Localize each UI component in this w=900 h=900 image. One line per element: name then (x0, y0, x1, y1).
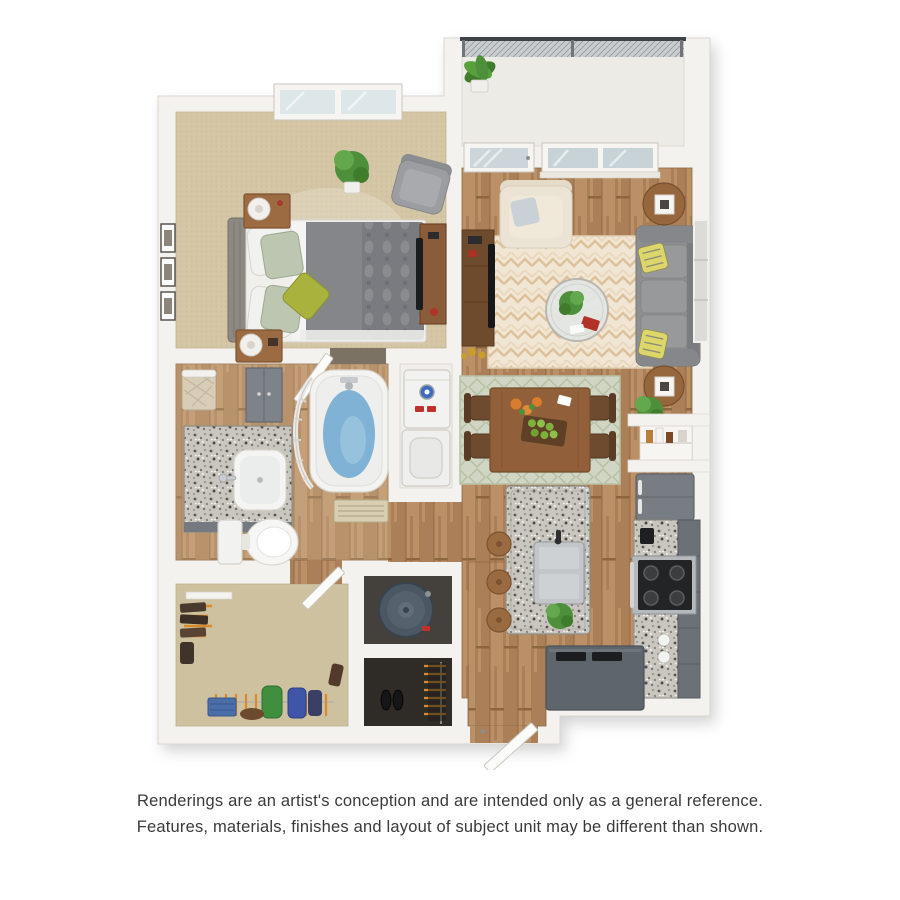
hanging-shirt-navy (308, 690, 322, 716)
washer (404, 370, 450, 428)
coffee-table (546, 279, 608, 341)
picture-frames (161, 224, 175, 320)
hanging-shirt-green (262, 686, 282, 718)
balcony-floor (462, 56, 684, 146)
railing-post-middle (571, 40, 574, 57)
hall-floor (388, 502, 462, 562)
bed (228, 218, 426, 342)
coat-closet-shoe-right (393, 690, 403, 710)
railing-post-left (462, 40, 465, 57)
bedroom-window (274, 84, 402, 120)
bedroom-door-threshold (330, 348, 386, 364)
tv-stand (461, 230, 495, 359)
disclaimer-line-1: Renderings are an artist's conception an… (0, 788, 900, 814)
duvet-patterned-half (362, 222, 424, 340)
wall-art-panel (694, 220, 708, 342)
floor-register (334, 500, 388, 522)
vanity (184, 426, 292, 532)
headboard (228, 218, 246, 342)
range-stove (630, 556, 696, 614)
floorplan-page: Renderings are an artist's conception an… (0, 0, 900, 900)
coat-closet-shoe-left (381, 690, 391, 710)
sheet-foot (300, 330, 424, 340)
peninsula-counter (546, 646, 644, 710)
floorplan-rendering (0, 0, 900, 770)
linen-cabinet (246, 368, 282, 422)
wicker-hamper (182, 370, 216, 410)
dining-table (490, 388, 590, 472)
hanging-bag (180, 642, 194, 664)
sofa-pillow-south (638, 329, 669, 360)
living-window (540, 143, 660, 178)
kitchen-canister-2 (658, 651, 670, 663)
closet-shoes-brown (240, 708, 264, 720)
barstools (487, 532, 511, 632)
bedroom-media-console (416, 224, 446, 324)
nightstand-north (244, 194, 290, 228)
floorplan-figure (0, 0, 900, 770)
dryer (402, 430, 450, 486)
disclaimer-caption: Renderings are an artist's conception an… (0, 788, 900, 840)
railing-post-right (680, 40, 683, 57)
nightstand-south (236, 330, 282, 362)
kitchen-canister-1 (658, 634, 670, 646)
balcony-glass-door (464, 143, 534, 172)
end-table-north (643, 183, 685, 225)
kitchen-island (506, 486, 590, 634)
pillow-pattern-1 (260, 230, 304, 279)
hanging-shirt-blue (288, 688, 306, 718)
refrigerator (636, 474, 694, 520)
coffee-maker (640, 528, 654, 544)
sofa (636, 226, 700, 366)
cream-armchair (500, 180, 572, 248)
dining-area (460, 376, 620, 484)
folded-jeans (208, 698, 236, 716)
sofa-pillow-north (637, 242, 669, 274)
closet-shelf (186, 592, 232, 599)
laundry-closet (402, 370, 450, 486)
utility-closet (379, 583, 433, 637)
disclaimer-line-2: Features, materials, finishes and layout… (0, 814, 900, 840)
toilet (218, 519, 298, 565)
